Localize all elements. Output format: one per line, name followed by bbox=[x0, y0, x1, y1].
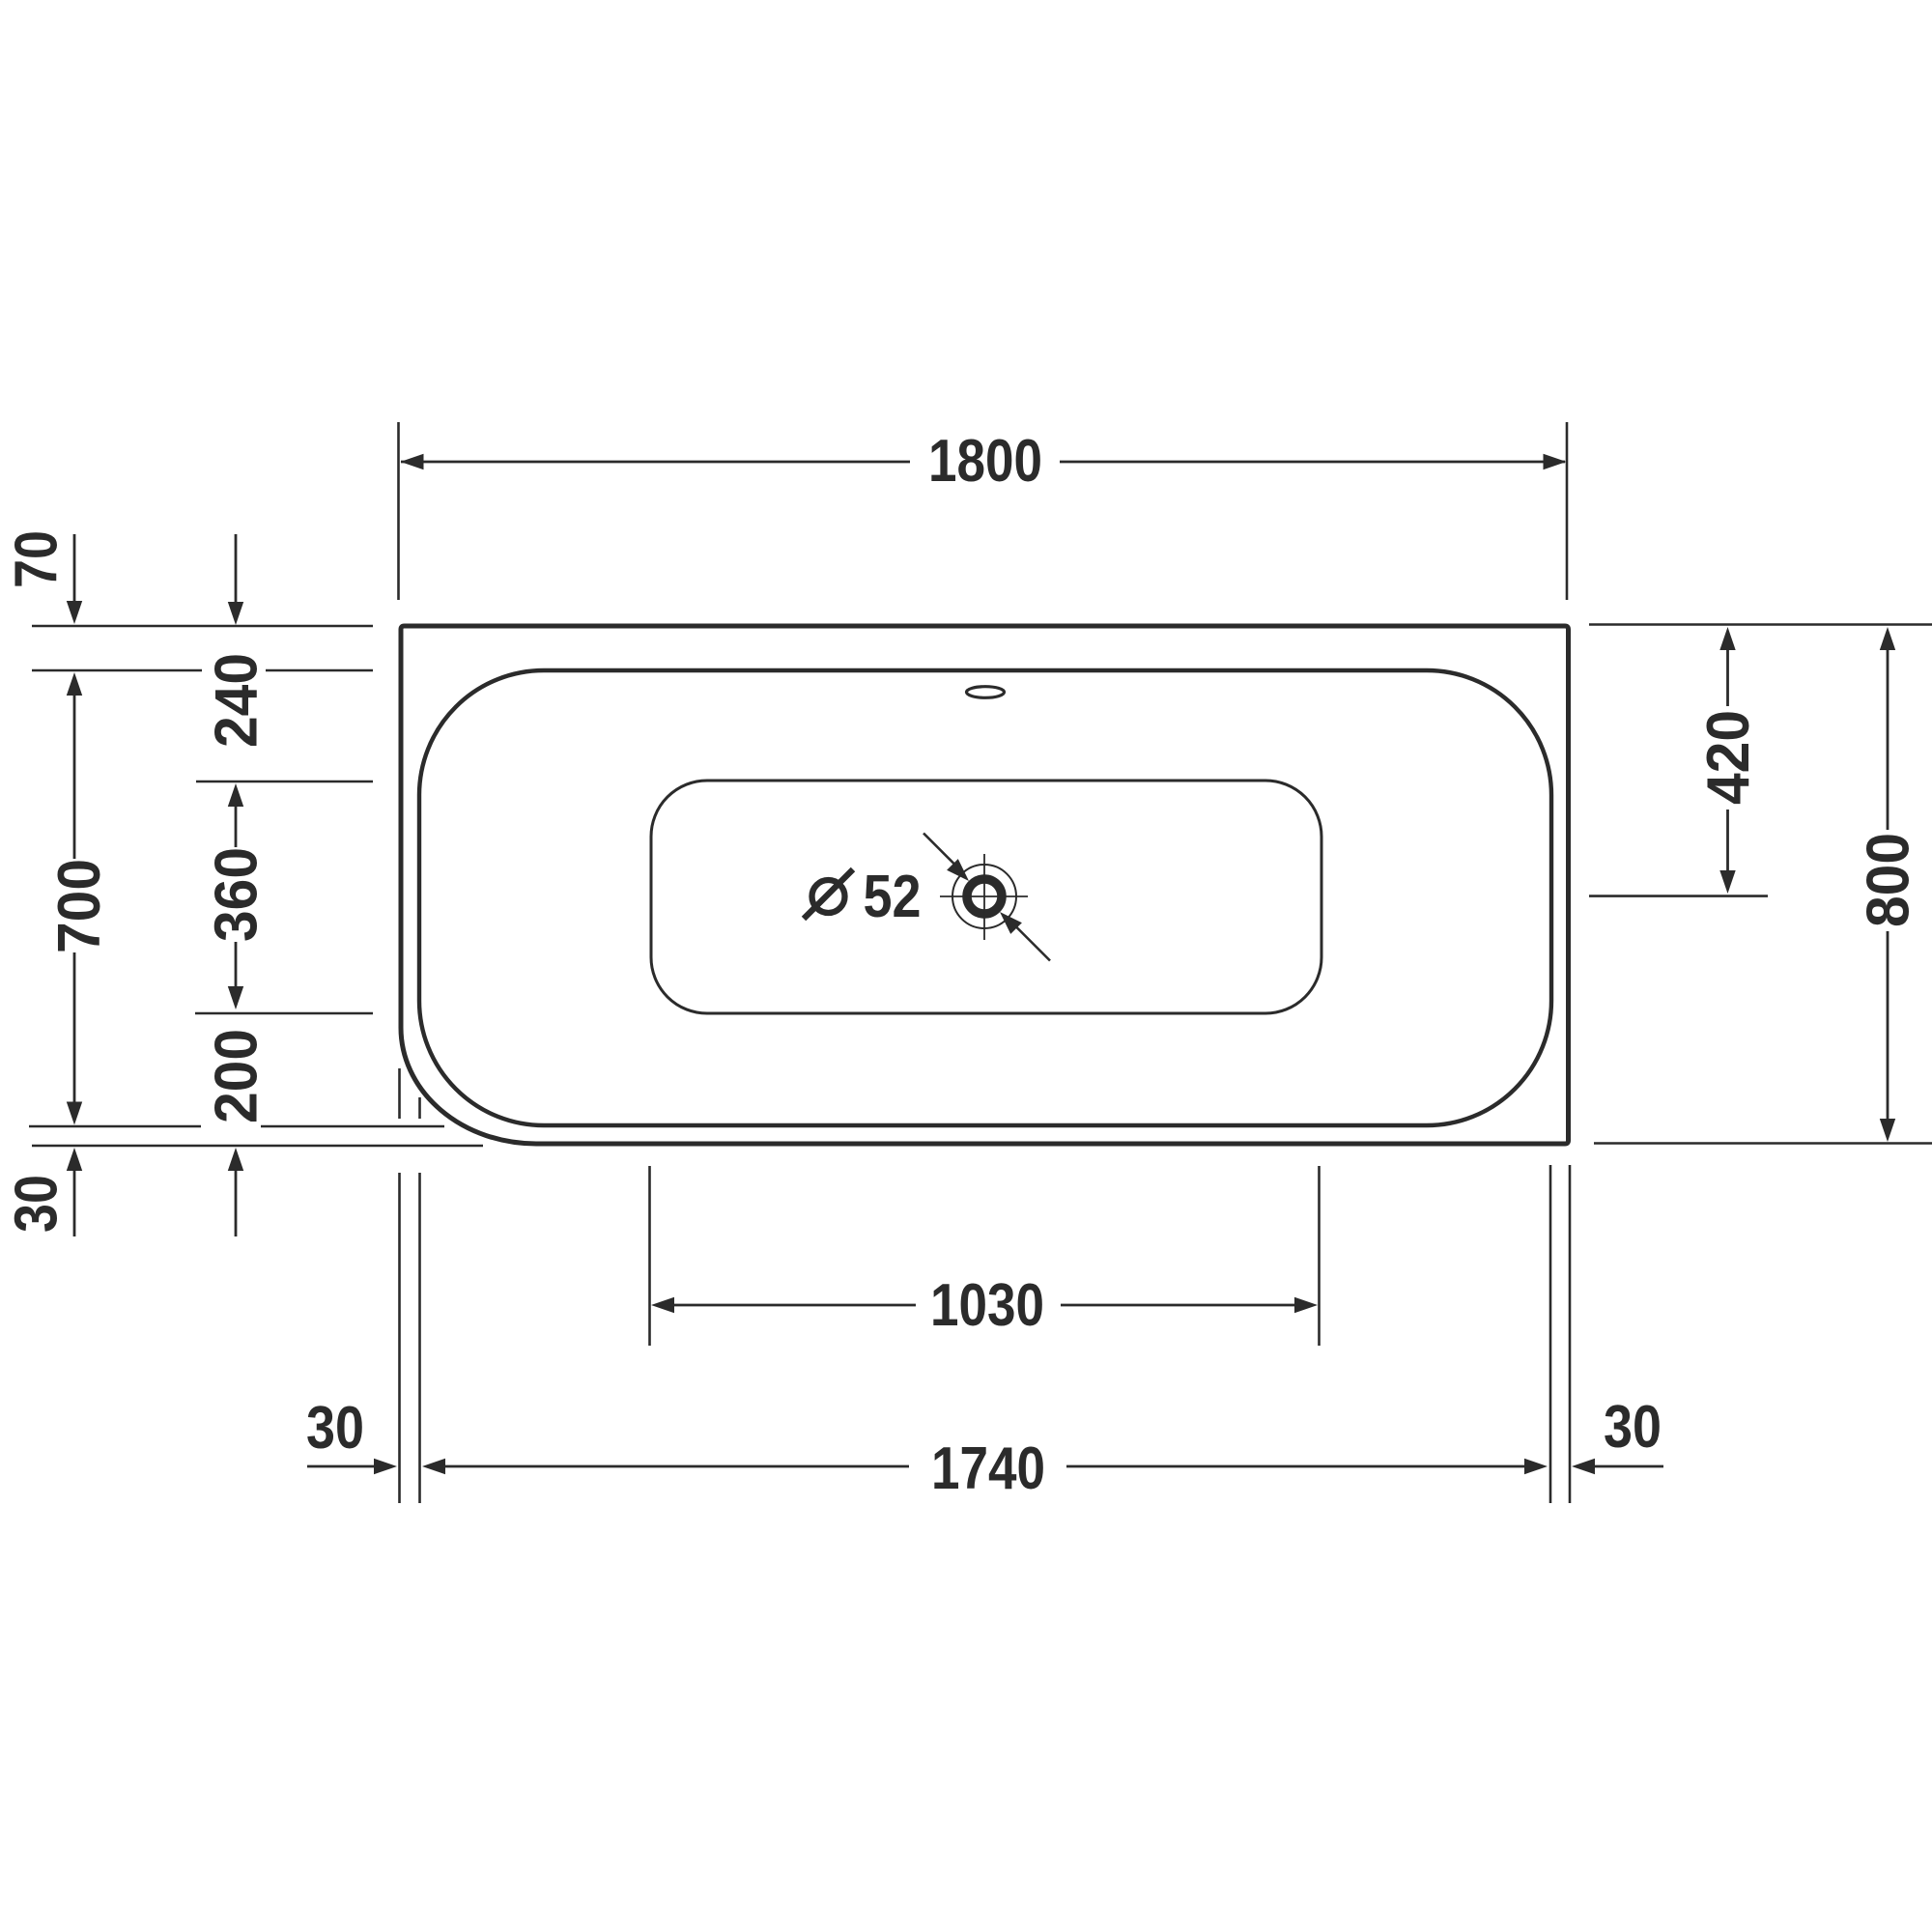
svg-text:240: 240 bbox=[203, 653, 270, 748]
svg-text:70: 70 bbox=[3, 530, 71, 588]
svg-text:700: 700 bbox=[45, 859, 113, 953]
svg-text:1030: 1030 bbox=[930, 1271, 1044, 1339]
svg-text:800: 800 bbox=[1855, 833, 1922, 927]
svg-text:420: 420 bbox=[1694, 710, 1762, 805]
svg-text:360: 360 bbox=[203, 847, 270, 942]
svg-text:30: 30 bbox=[1604, 1393, 1662, 1461]
svg-text:1800: 1800 bbox=[928, 427, 1042, 495]
svg-text:1740: 1740 bbox=[931, 1435, 1045, 1502]
svg-text:30: 30 bbox=[3, 1175, 71, 1233]
svg-text:52: 52 bbox=[864, 863, 922, 930]
svg-text:30: 30 bbox=[306, 1394, 364, 1462]
svg-text:200: 200 bbox=[203, 1029, 270, 1123]
